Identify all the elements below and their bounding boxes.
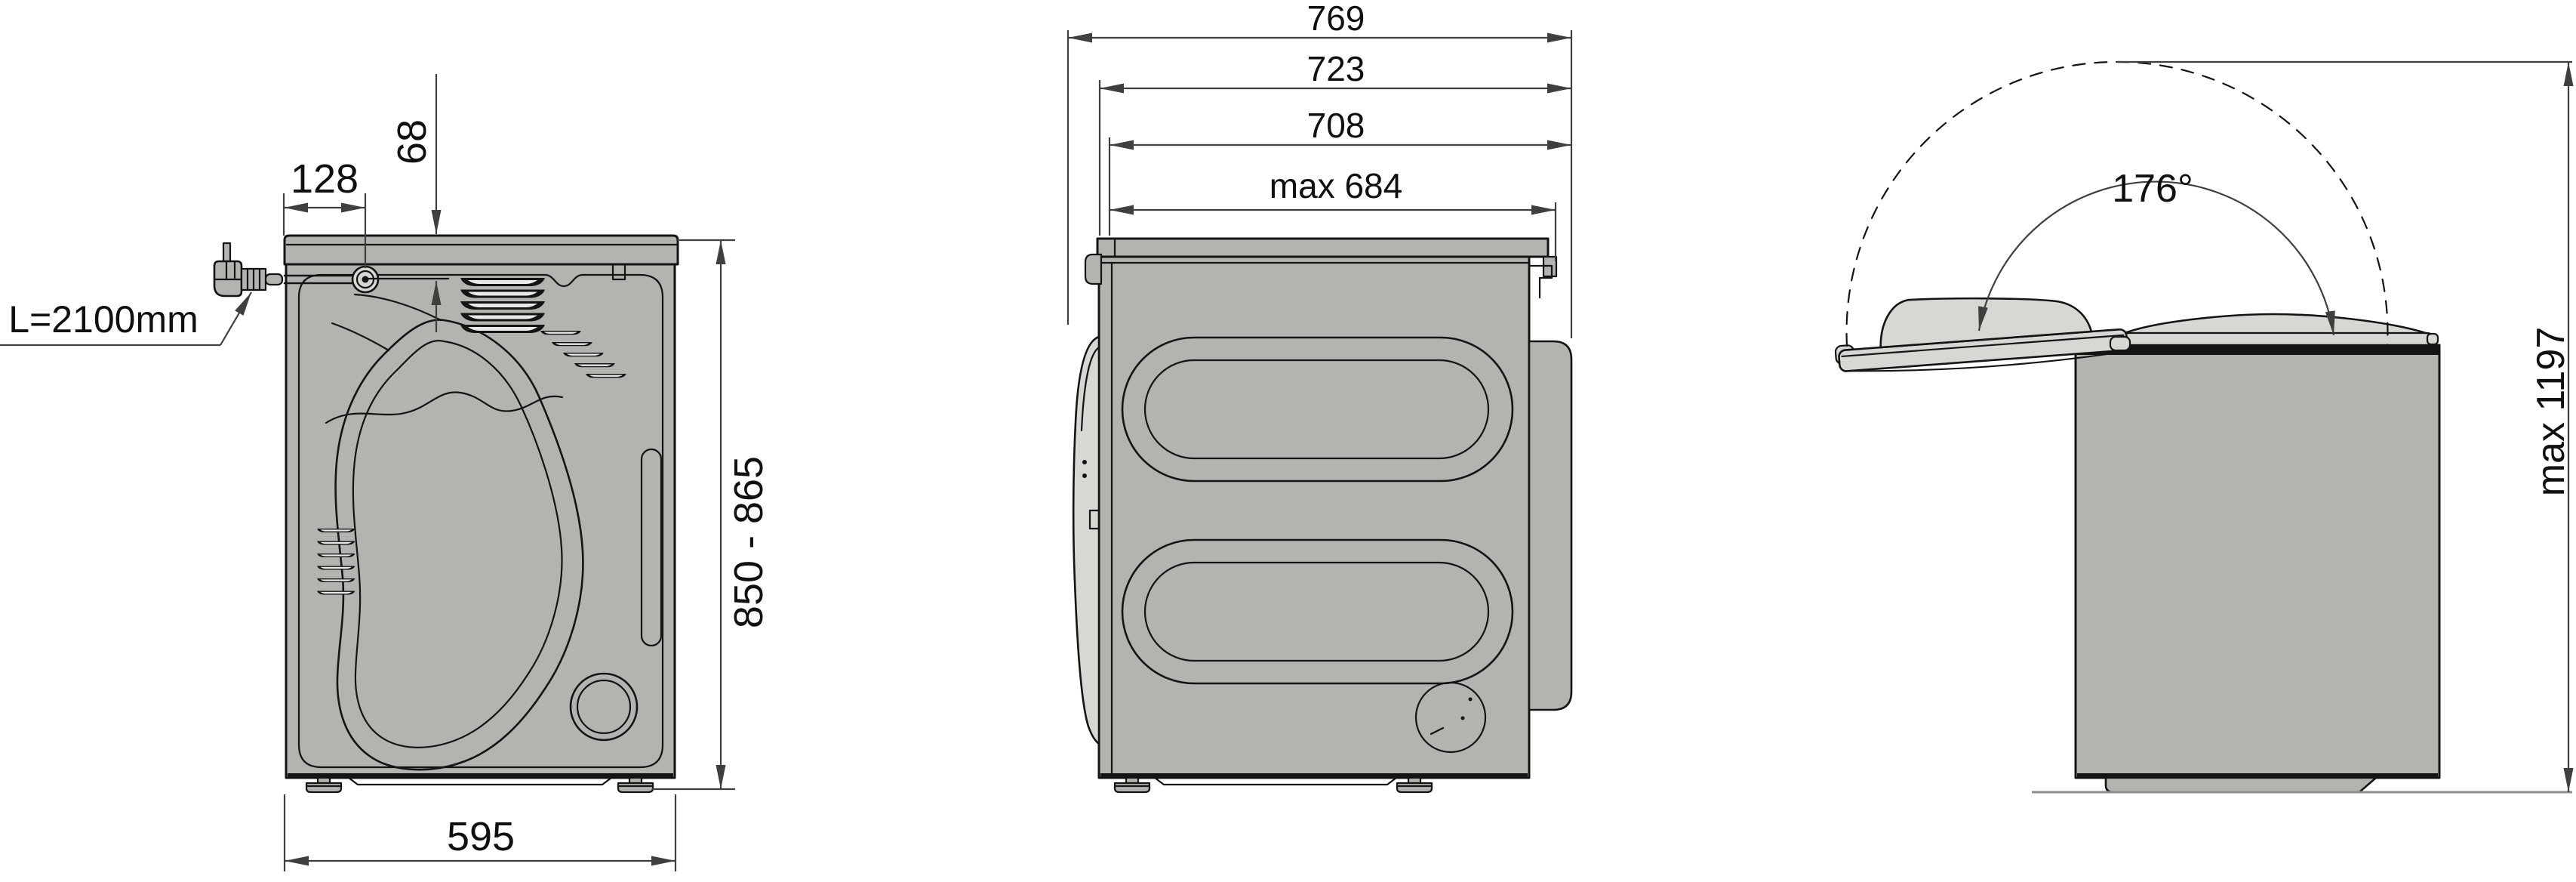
- dimension-depth-with-door: [1100, 80, 1571, 236]
- label-cord-offset-y: 68: [392, 119, 432, 165]
- rear-worktop: [285, 236, 678, 264]
- closed-lid: [2118, 314, 2438, 345]
- side-door-profile: [1073, 337, 1099, 744]
- label-depth-with-door: 723: [1307, 51, 1365, 86]
- side-view-drawing: [1073, 239, 1571, 792]
- label-depth-overall: 769: [1307, 1, 1365, 35]
- label-depth-worktop: max 684: [1270, 168, 1402, 203]
- label-rear-height: 850 - 865: [728, 456, 769, 628]
- lid-view-body: [2076, 345, 2439, 778]
- label-cord-offset-x: 128: [291, 159, 359, 199]
- rear-foot-right: [618, 778, 653, 792]
- rear-panel: [286, 264, 675, 778]
- label-depth-body: 708: [1307, 108, 1365, 143]
- side-cabinet: [1099, 257, 1529, 778]
- label-cord-length: L=2100mm: [8, 301, 199, 338]
- power-plug-icon: [214, 243, 282, 296]
- side-worktop: [1097, 239, 1548, 257]
- lid-view-plinth: [2106, 778, 2376, 792]
- lid-hinge: [2110, 337, 2130, 350]
- side-foot-rear: [1397, 778, 1432, 792]
- label-height-open-max: max 1197: [2531, 327, 2571, 497]
- label-opening-angle: 176°: [2112, 169, 2193, 208]
- dimension-drawing-canvas: 128 68 L=2100mm 850 - 865 595 769 723 70…: [0, 0, 2576, 882]
- rear-view-drawing: [285, 236, 678, 792]
- side-front-latch: [1085, 254, 1101, 284]
- side-rear-bulge: [1529, 341, 1571, 710]
- rear-foot-left: [306, 778, 341, 792]
- side-foot-front: [1115, 778, 1150, 792]
- technical-drawing: [0, 0, 2576, 882]
- label-rear-width: 595: [447, 816, 515, 857]
